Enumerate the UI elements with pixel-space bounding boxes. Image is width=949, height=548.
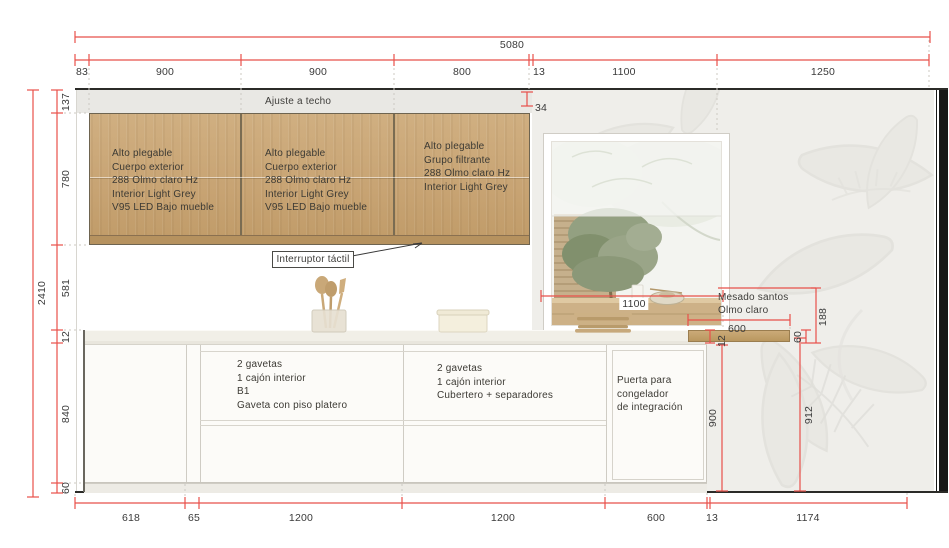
counter-note-line-1: Mesado santos (718, 291, 788, 304)
dim-left-2: 581 (60, 279, 72, 297)
counter-note-line-2: Olmo claro (718, 304, 768, 317)
dim-bottom-3: 1200 (491, 512, 515, 524)
dim-left-5: 60 (60, 482, 72, 494)
dim-left-4: 840 (60, 405, 72, 423)
elevation-drawing: Alto plegable Cuerpo exterior 288 Olmo c… (0, 0, 949, 548)
dim-bottom-4: 600 (647, 512, 665, 524)
dim-base-height: 900 (707, 409, 719, 427)
dim-top-5: 1100 (612, 66, 635, 78)
ceiling-note: Ajuste a techo (265, 95, 331, 108)
dim-right-height: 912 (803, 406, 815, 424)
dim-counter-thickness: 12 (716, 335, 728, 347)
dim-top-offset: 34 (535, 102, 547, 114)
dim-bottom-6: 1174 (796, 512, 819, 524)
dim-top-0: 83 (76, 66, 88, 78)
dim-shelf-thickness: 60 (792, 331, 804, 343)
dim-bottom-2: 1200 (289, 512, 313, 524)
dim-bottom-1: 65 (188, 512, 200, 524)
dim-bottom-0: 618 (122, 512, 140, 524)
dim-top-4: 13 (533, 66, 545, 78)
dim-total-width: 5080 (497, 39, 527, 51)
dim-bottom-5: 13 (706, 512, 718, 524)
dim-window-width: 1100 (619, 298, 648, 310)
dim-shelf-drop: 188 (817, 308, 829, 326)
switch-callout: Interruptor táctil (272, 251, 354, 268)
dim-left-0: 137 (60, 93, 72, 111)
dim-shelf-width: 600 (728, 323, 746, 335)
dim-top-2: 900 (309, 66, 327, 78)
dim-top-6: 1250 (811, 66, 835, 78)
dim-height-total: 2410 (36, 281, 48, 305)
leader-arrow (352, 243, 422, 256)
dimension-lines (0, 0, 949, 548)
dim-top-3: 800 (453, 66, 471, 78)
dim-top-1: 900 (156, 66, 174, 78)
dim-left-3: 12 (60, 331, 72, 343)
dim-left-1: 780 (60, 170, 72, 188)
